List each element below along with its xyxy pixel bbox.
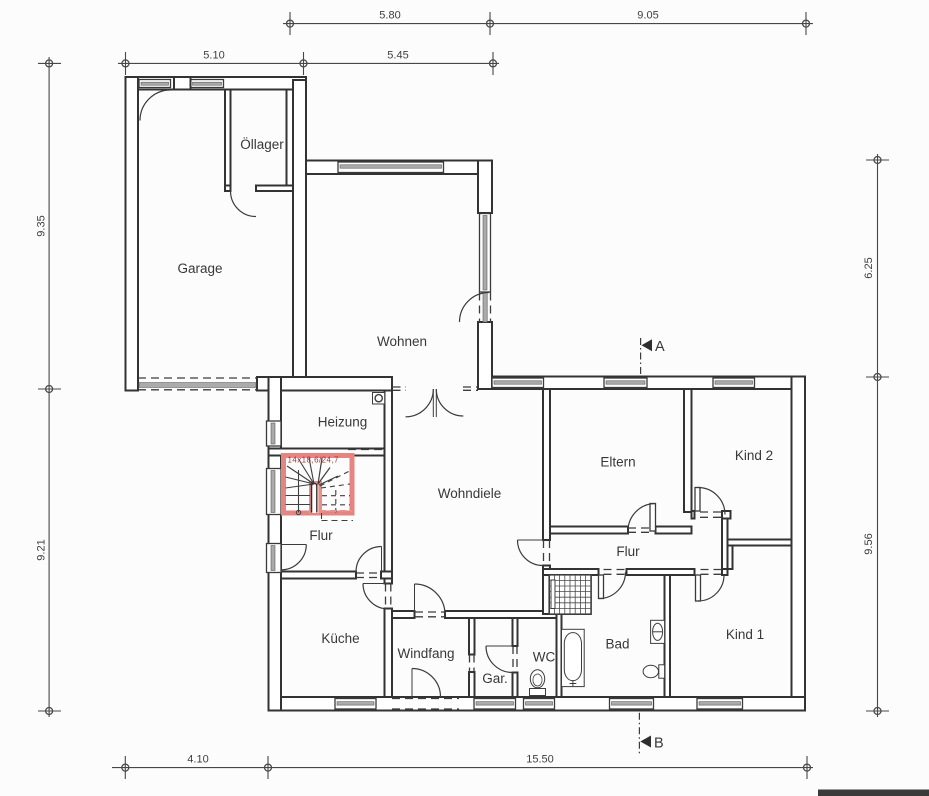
svg-text:14x18,6/24,7: 14x18,6/24,7 [288,456,340,465]
svg-text:Garage: Garage [177,261,222,276]
svg-text:Flur: Flur [309,528,333,543]
svg-text:Heizung: Heizung [318,415,368,430]
svg-text:4.10: 4.10 [187,754,208,766]
svg-text:A: A [655,339,665,355]
svg-text:Eltern: Eltern [600,455,635,470]
svg-text:Wohnen: Wohnen [377,334,427,349]
svg-text:9.35: 9.35 [36,215,48,236]
svg-text:Kind 1: Kind 1 [726,627,764,642]
svg-text:Bad: Bad [605,637,629,652]
svg-text:9.21: 9.21 [36,539,48,560]
svg-text:Gar.: Gar. [482,671,508,686]
svg-text:6.25: 6.25 [863,257,875,278]
svg-text:Windfang: Windfang [397,646,454,661]
svg-text:15.50: 15.50 [526,754,554,766]
svg-text:9.56: 9.56 [863,533,875,554]
svg-text:9.05: 9.05 [637,10,658,22]
svg-text:5.80: 5.80 [379,10,400,22]
svg-text:5.10: 5.10 [203,50,224,62]
svg-text:5.45: 5.45 [387,50,408,62]
svg-text:Küche: Küche [321,631,359,646]
svg-text:Flur: Flur [616,544,640,559]
svg-text:B: B [654,736,664,752]
svg-text:Öllager: Öllager [240,137,284,152]
svg-text:Kind 2: Kind 2 [735,448,773,463]
svg-text:WC: WC [533,650,556,665]
svg-text:Wohndiele: Wohndiele [438,486,502,501]
